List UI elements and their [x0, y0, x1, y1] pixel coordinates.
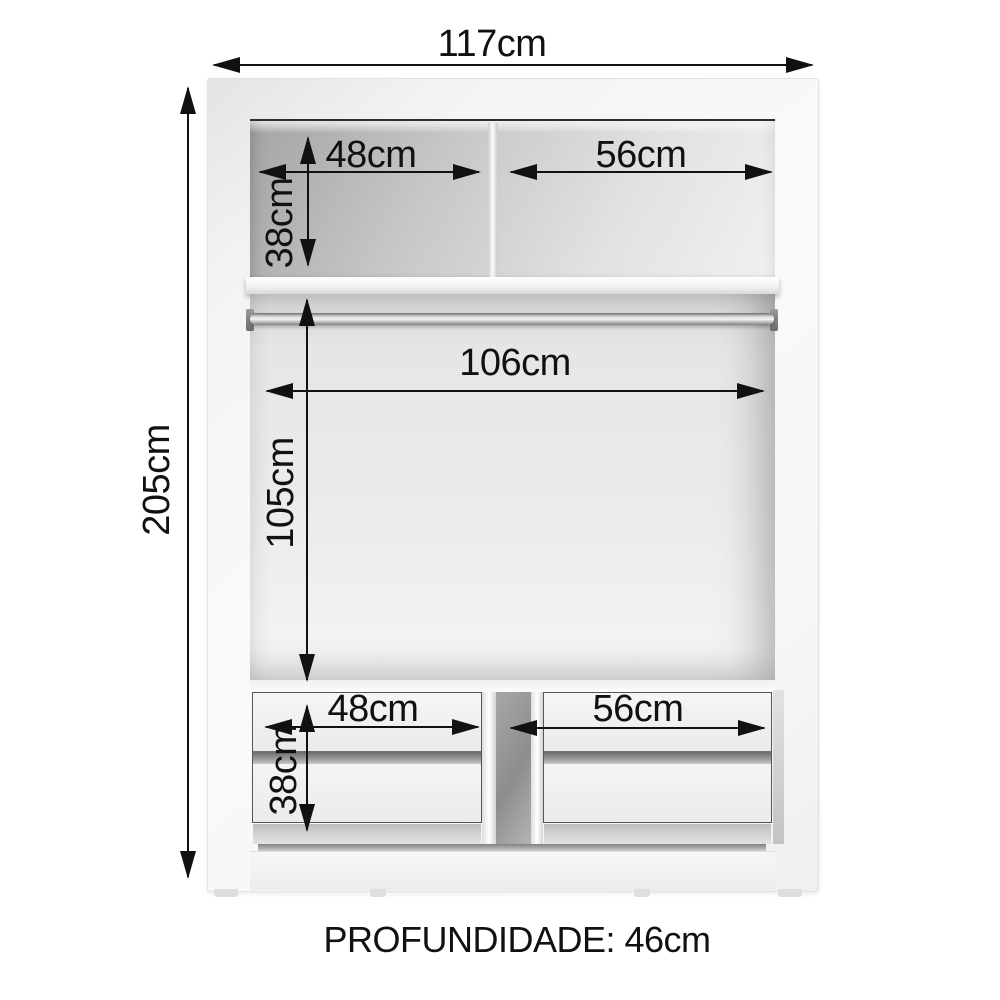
left-drawer-unit-shadow [253, 824, 481, 844]
upper-shelf [246, 277, 779, 294]
right-drawer-unit-shadow [544, 824, 771, 844]
foot [214, 889, 238, 897]
foot [370, 889, 386, 897]
dim-label-lower-right-width: 56cm [593, 690, 684, 728]
dim-label-hanging-height: 105cm [262, 437, 300, 549]
hanging-rod [250, 313, 774, 325]
foot [634, 889, 650, 897]
dim-label-upper-left-width: 48cm [326, 136, 417, 174]
wardrobe-dimension-diagram: 117cm 205cm 48cm 56cm 38cm 106cm 105cm 4… [0, 0, 1000, 1000]
foot [778, 889, 802, 897]
right-side-panel-inner-face [773, 690, 784, 844]
base-panel [250, 851, 775, 890]
upper-compartment-divider [488, 123, 498, 278]
dim-label-overall-height: 205cm [138, 424, 176, 536]
center-divider-right-panel [531, 692, 543, 844]
dim-label-lower-left-width: 48cm [328, 690, 419, 728]
dim-label-upper-right-width: 56cm [596, 136, 687, 174]
center-open-gap [496, 692, 531, 844]
right-lower-drawer [544, 764, 771, 822]
dim-label-hanging-width: 106cm [459, 344, 571, 382]
dim-label-lower-height: 38cm [265, 725, 303, 816]
bottom-rail [258, 844, 766, 851]
depth-note: PROFUNDIDADE: 46cm [323, 919, 710, 961]
dim-label-overall-width: 117cm [438, 25, 547, 63]
dim-label-upper-height: 38cm [261, 178, 299, 269]
center-divider-left-panel [482, 692, 496, 844]
right-drawer-handle-groove [544, 752, 771, 764]
